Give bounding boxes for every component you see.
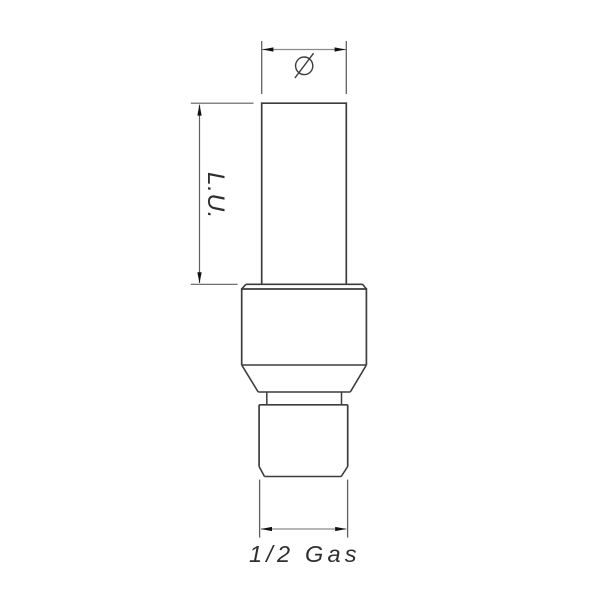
svg-text:1/2 Gas: 1/2 Gas bbox=[249, 541, 361, 567]
svg-text:L.U.: L.U. bbox=[202, 172, 229, 219]
